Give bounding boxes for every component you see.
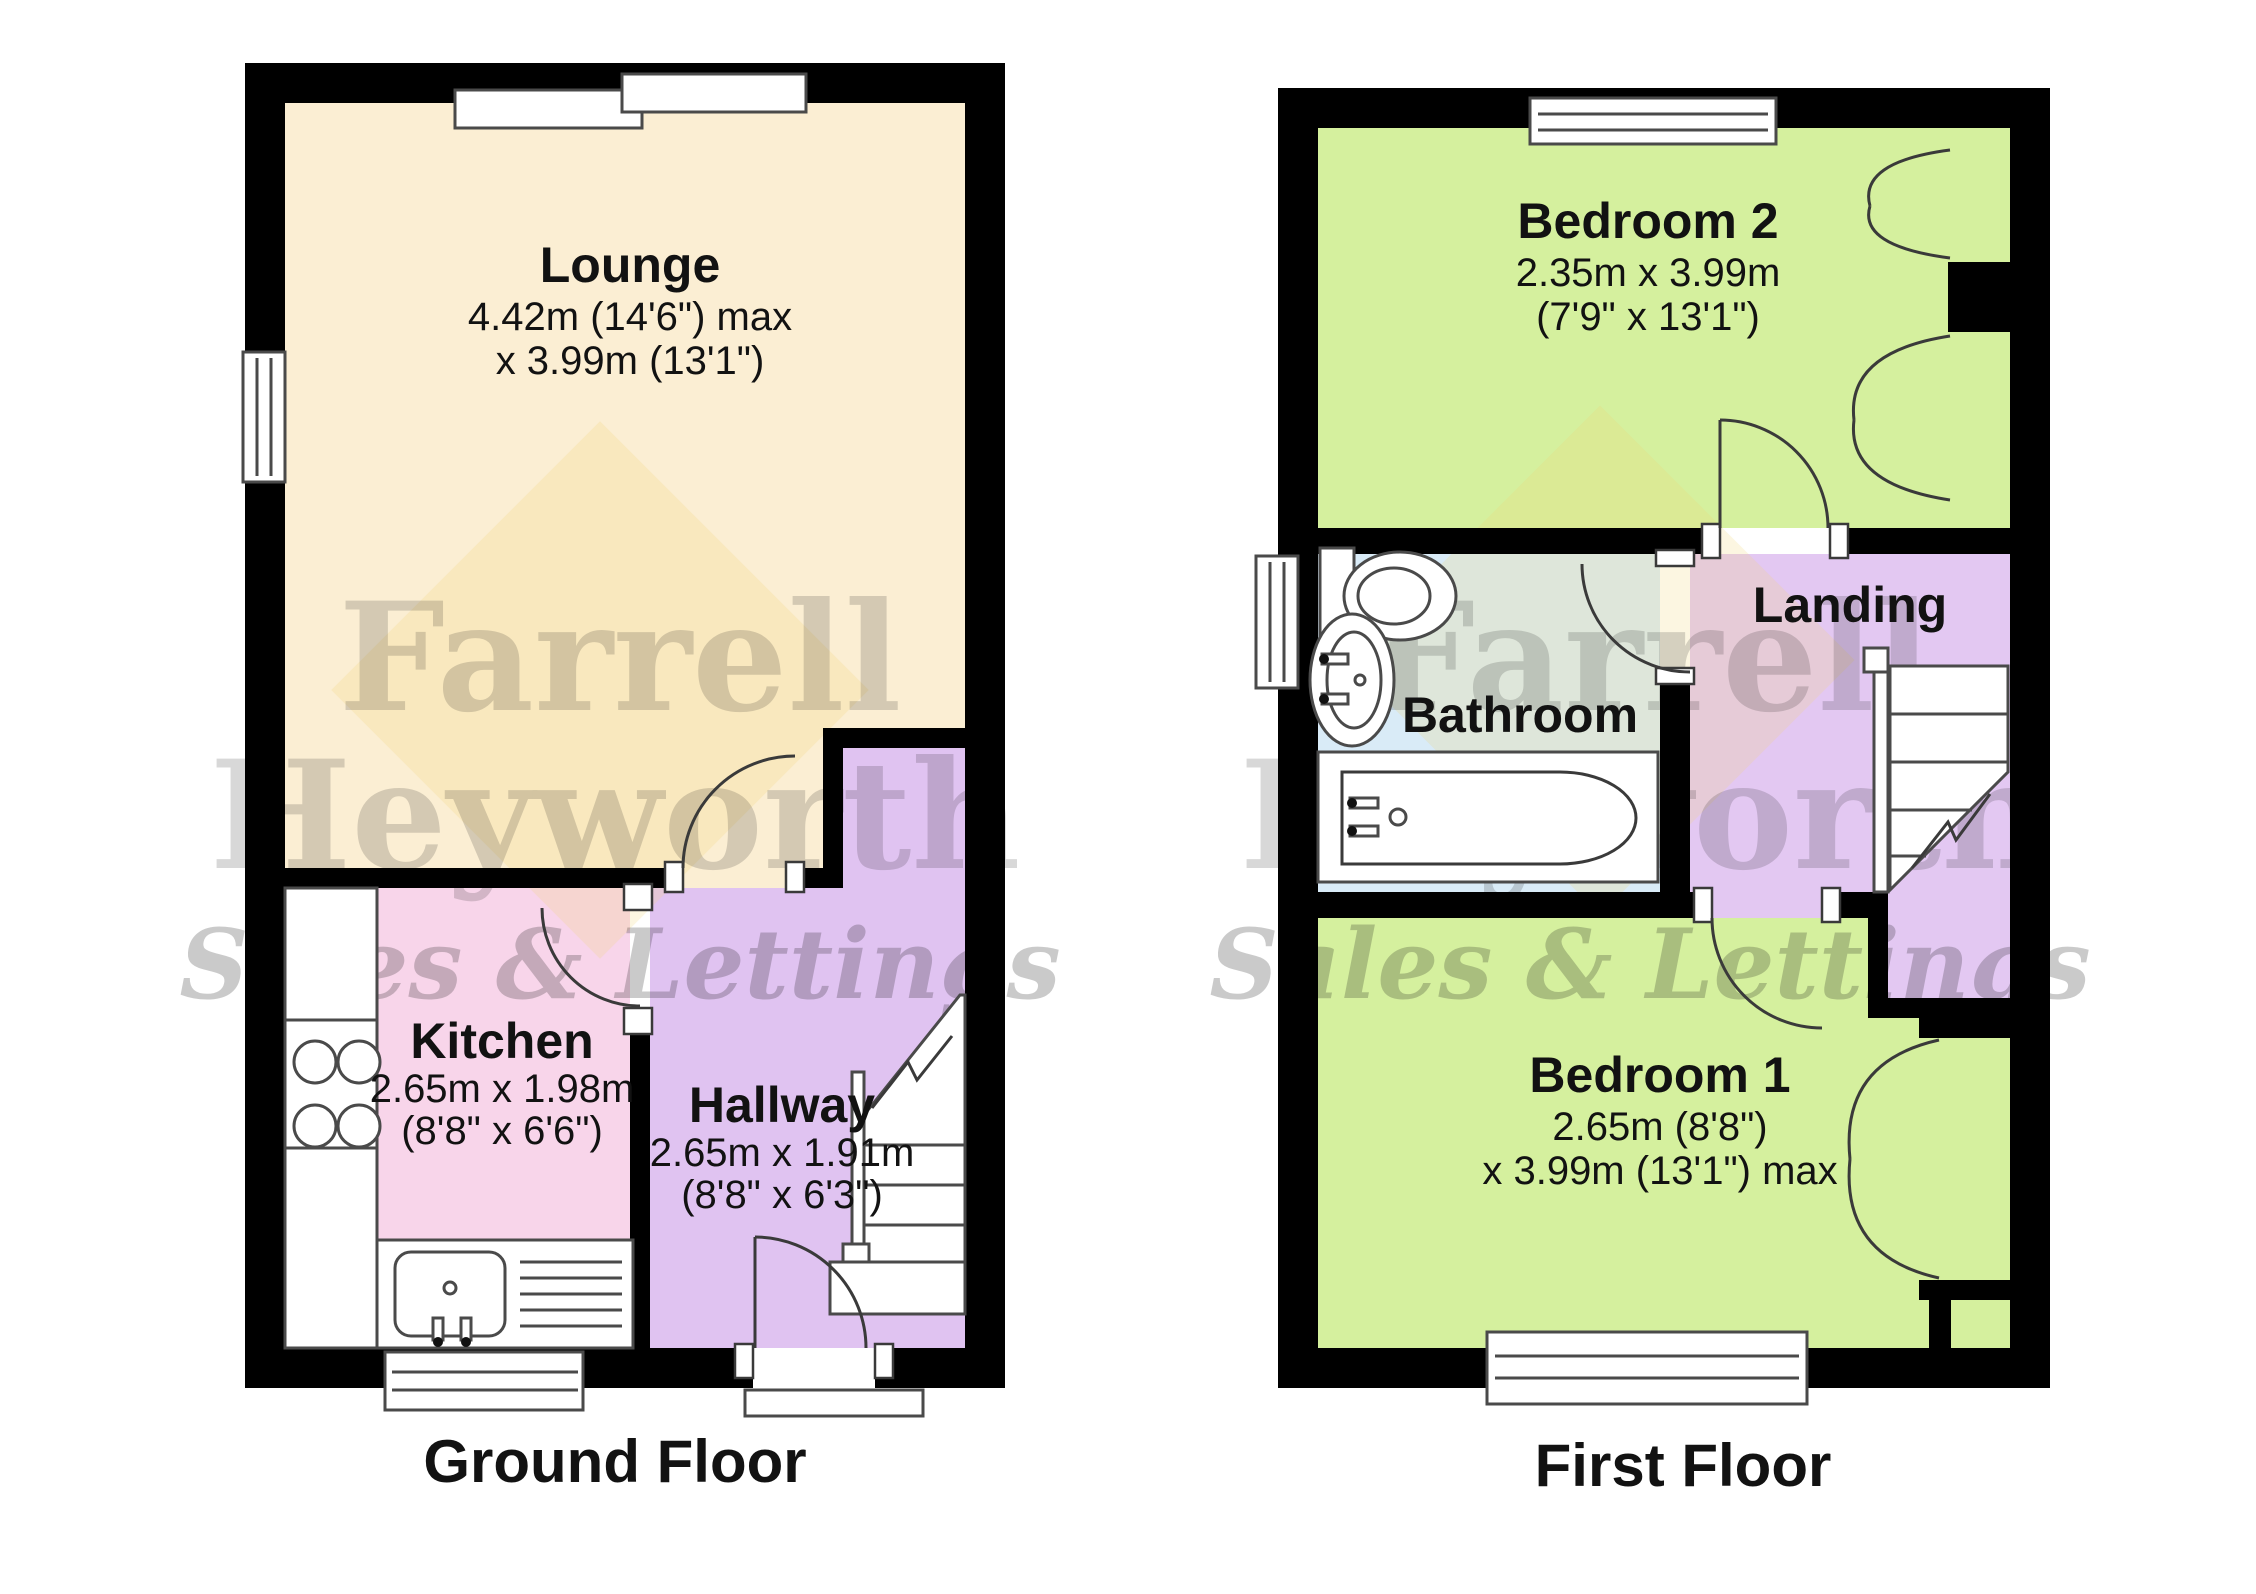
lounge-window-icon: [455, 90, 642, 128]
bedroom1-window-icon: [1487, 1332, 1807, 1404]
floorplan-page: Farrell Heyworth Sales & Lettings: [0, 0, 2256, 1594]
bathroom-label: Bathroom: [1402, 687, 1638, 743]
first-floor-plan: Farrell Heyworth Sales & Lettings: [1209, 88, 2090, 1499]
bedroom1-label: Bedroom 1: [1529, 1047, 1790, 1103]
bathroom-window-icon: [1256, 556, 1298, 688]
hob-icon: [294, 1041, 336, 1083]
floorplan-canvas: Farrell Heyworth Sales & Lettings: [0, 0, 2256, 1594]
ground-floor-plan: Farrell Heyworth Sales & Lettings: [179, 63, 1060, 1495]
kitchen-window-icon: [385, 1352, 583, 1410]
bedroom2-dim1: 2.35m x 3.99m: [1516, 251, 1781, 295]
kitchen-dim2: (8'8" x 6'6"): [401, 1109, 603, 1153]
newel-post: [1864, 648, 1888, 672]
lounge-dim2: x 3.99m (13'1"): [496, 339, 765, 383]
hob-icon: [338, 1105, 380, 1147]
lounge-dim1: 4.42m (14'6") max: [468, 295, 792, 339]
bedroom1-dim2: x 3.99m (13'1") max: [1482, 1149, 1837, 1193]
landing-label: Landing: [1753, 577, 1947, 633]
ground-floor-title: Ground Floor: [423, 1428, 806, 1495]
front-door-opening: [753, 1348, 875, 1388]
hallway-dim2: (8'8" x 6'3"): [681, 1173, 883, 1217]
hallway-label: Hallway: [689, 1077, 875, 1133]
tap-icon: [461, 1318, 471, 1340]
kitchen-label: Kitchen: [410, 1013, 593, 1069]
sink-drain-icon: [444, 1282, 456, 1294]
kitchen-dim1: 2.65m x 1.98m: [370, 1067, 635, 1111]
front-door-threshold: [745, 1390, 923, 1416]
watermark-line1: Farrell: [339, 570, 902, 746]
bedroom2-window-icon: [1530, 98, 1776, 144]
hob-icon: [294, 1105, 336, 1147]
toilet-icon: [1358, 568, 1430, 624]
bedroom2-label: Bedroom 2: [1517, 193, 1778, 249]
bedroom1-dim1: 2.65m (8'8"): [1552, 1105, 1767, 1149]
hallway-dim1: 2.65m x 1.91m: [650, 1131, 915, 1175]
first-floor-title: First Floor: [1535, 1432, 1832, 1499]
lounge-label: Lounge: [540, 237, 721, 293]
bedroom2-dim2: (7'9" x 13'1"): [1536, 295, 1760, 339]
lounge-side-window-icon: [243, 352, 285, 482]
tap-icon: [433, 1318, 443, 1340]
lounge-window-icon: [622, 74, 806, 112]
